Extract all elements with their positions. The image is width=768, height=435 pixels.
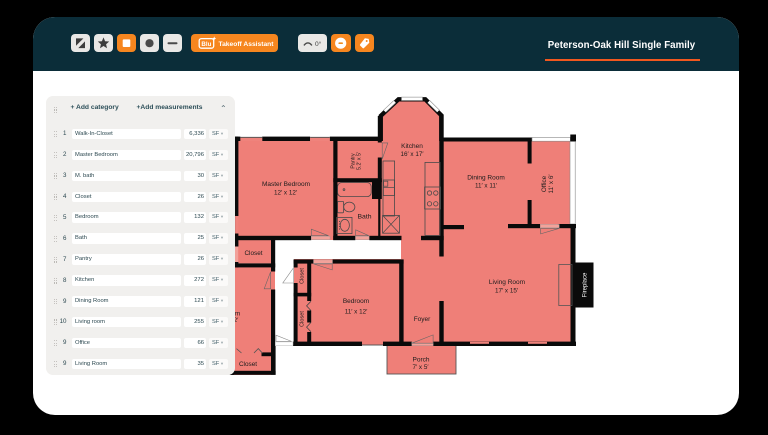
svg-text:12′ x 12′: 12′ x 12′ xyxy=(274,189,298,196)
svg-text:Closet: Closet xyxy=(300,268,306,284)
svg-text:Office: Office xyxy=(541,175,548,192)
svg-text:5.2′ x 5′: 5.2′ x 5′ xyxy=(357,152,363,170)
svg-text:Bath: Bath xyxy=(358,213,372,220)
svg-text:11′ x 6′: 11′ x 6′ xyxy=(548,174,555,194)
svg-text:Fireplace: Fireplace xyxy=(583,272,589,297)
svg-text:Kitchen: Kitchen xyxy=(401,143,423,150)
svg-text:Takeoff Assistant: Takeoff Assistant xyxy=(219,41,275,48)
svg-text:Closet: Closet xyxy=(239,361,257,368)
svg-text:Closet: Closet xyxy=(244,250,262,257)
svg-text:Blu: Blu xyxy=(201,41,211,48)
svg-text:Closet: Closet xyxy=(300,311,306,327)
svg-text:17′ x 15′: 17′ x 15′ xyxy=(495,287,519,294)
svg-text:Master Bedroom: Master Bedroom xyxy=(262,181,310,188)
svg-text:11′ x 12′: 11′ x 12′ xyxy=(345,309,368,316)
svg-text:Bedroom: Bedroom xyxy=(343,298,369,305)
svg-text:0°: 0° xyxy=(315,39,322,47)
svg-text:16′ x 17′: 16′ x 17′ xyxy=(400,151,424,158)
svg-text:Living Room: Living Room xyxy=(489,279,525,286)
svg-text:Porch: Porch xyxy=(413,356,430,363)
svg-text:Foyer: Foyer xyxy=(414,316,431,323)
svg-text:11′ x 11′: 11′ x 11′ xyxy=(475,182,498,189)
svg-text:Dining Room: Dining Room xyxy=(467,175,505,182)
svg-text:7′ x 5′: 7′ x 5′ xyxy=(412,364,429,371)
